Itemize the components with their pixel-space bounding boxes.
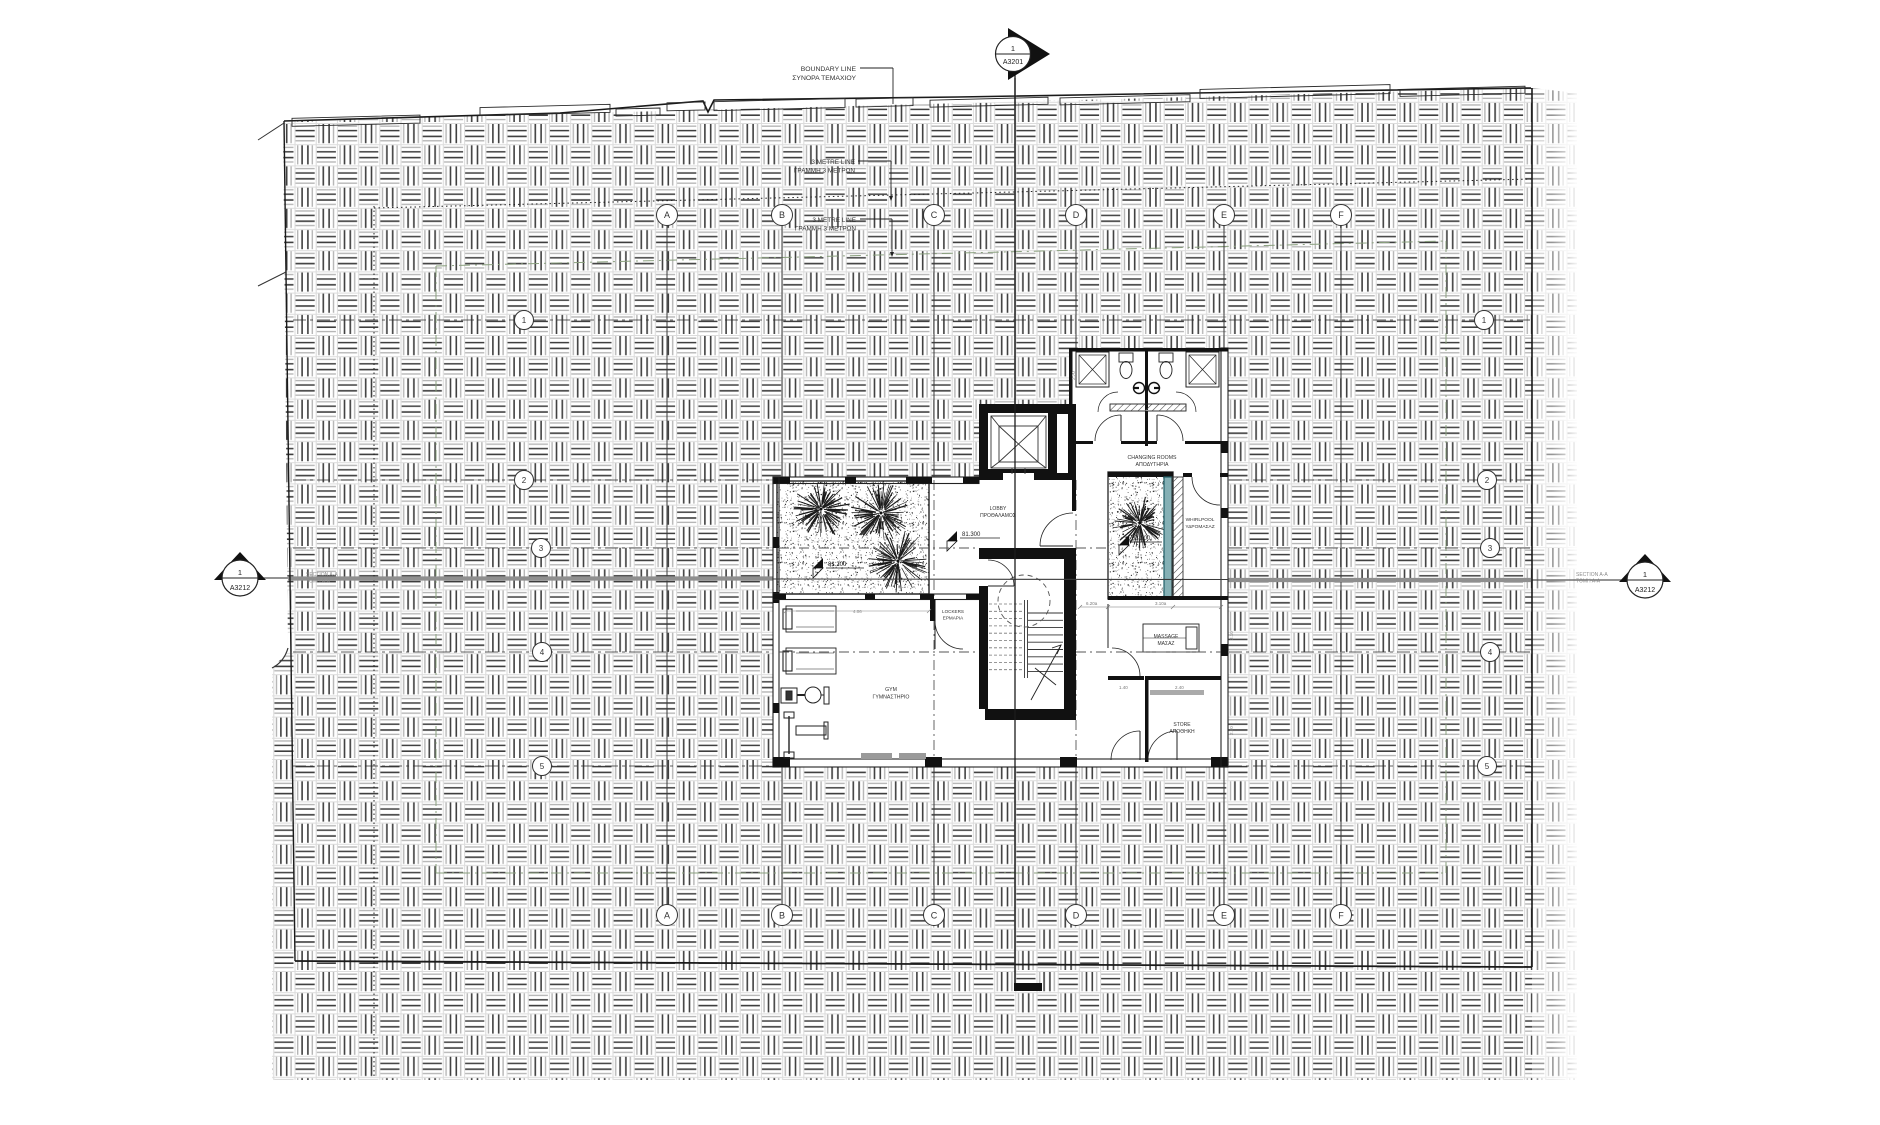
- svg-text:2.70: 2.70: [1071, 371, 1076, 380]
- svg-text:ΣΥΝΟΡΑ ΤΕΜΑΧΙΟΥ: ΣΥΝΟΡΑ ΤΕΜΑΧΙΟΥ: [792, 75, 856, 82]
- svg-text:1: 1: [238, 568, 242, 577]
- svg-text:D: D: [1073, 210, 1080, 220]
- svg-text:C: C: [931, 911, 938, 921]
- svg-text:D: D: [1073, 911, 1080, 921]
- svg-text:4: 4: [1488, 648, 1493, 657]
- svg-text:E: E: [1221, 210, 1227, 220]
- svg-text:ΓΡΑΜΜΗ 3 ΜΕΤΡΩΝ: ΓΡΑΜΜΗ 3 ΜΕΤΡΩΝ: [795, 226, 856, 233]
- svg-text:ΥΔΡΟΜΑΣΑΖ: ΥΔΡΟΜΑΣΑΖ: [1185, 524, 1214, 530]
- svg-text:ΕΡΜΑΡΙΑ: ΕΡΜΑΡΙΑ: [943, 616, 964, 621]
- svg-text:ΓΥΜΝΑΣΤΗΡΙΟ: ΓΥΜΝΑΣΤΗΡΙΟ: [873, 695, 910, 701]
- svg-text:ΜΑΣΑΖ: ΜΑΣΑΖ: [1158, 641, 1175, 647]
- svg-text:3 METRE LINE: 3 METRE LINE: [812, 217, 856, 224]
- svg-text:SECTION A-A: SECTION A-A: [1576, 572, 1608, 578]
- svg-text:5: 5: [540, 762, 545, 771]
- svg-text:3: 3: [539, 544, 544, 553]
- svg-text:A: A: [664, 210, 670, 220]
- svg-text:LOCKERS: LOCKERS: [942, 609, 964, 614]
- svg-text:LOBBY: LOBBY: [990, 506, 1007, 512]
- svg-text:F: F: [1338, 911, 1344, 921]
- svg-text:MASSAGE: MASSAGE: [1154, 634, 1179, 640]
- svg-text:B: B: [779, 210, 785, 220]
- svg-text:1: 1: [1482, 316, 1487, 325]
- svg-text:81.300: 81.300: [962, 532, 981, 538]
- svg-text:ΠΡΟΘΑΛΑΜΟΣ: ΠΡΟΘΑΛΑΜΟΣ: [980, 513, 1016, 519]
- svg-text:2.90: 2.90: [1229, 726, 1234, 735]
- svg-text:STORE: STORE: [1173, 722, 1191, 728]
- svg-text:2: 2: [522, 476, 527, 485]
- svg-text:3 METRE LINE: 3 METRE LINE: [811, 159, 855, 166]
- svg-text:3: 3: [1488, 544, 1493, 553]
- svg-text:E: E: [1221, 911, 1227, 921]
- svg-text:F: F: [1338, 210, 1344, 220]
- svg-text:1: 1: [1011, 44, 1015, 53]
- svg-text:ΓΡΑΜΜΗ 3 ΜΕΤΡΩΝ: ΓΡΑΜΜΗ 3 ΜΕΤΡΩΝ: [794, 168, 855, 175]
- svg-text:81.200: 81.200: [1132, 536, 1151, 542]
- svg-text:1.40: 1.40: [1119, 685, 1128, 690]
- svg-text:1: 1: [1643, 570, 1647, 579]
- svg-text:WHIRLPOOL: WHIRLPOOL: [1186, 517, 1215, 523]
- svg-text:BOUNDARY LINE: BOUNDARY LINE: [801, 66, 857, 73]
- svg-text:CHANGING ROOMS: CHANGING ROOMS: [1128, 455, 1178, 461]
- svg-text:A3212: A3212: [230, 585, 250, 592]
- svg-text:A3201: A3201: [1003, 59, 1023, 66]
- svg-text:1: 1: [522, 316, 527, 325]
- svg-text:B: B: [779, 911, 785, 921]
- svg-text:81.200: 81.200: [828, 562, 847, 568]
- svg-text:2: 2: [1485, 476, 1490, 485]
- svg-text:4.06: 4.06: [853, 609, 862, 614]
- svg-text:3.10a: 3.10a: [1155, 601, 1167, 606]
- svg-text:GYM: GYM: [885, 687, 897, 693]
- svg-text:TOMH A-A: TOMH A-A: [306, 579, 331, 585]
- svg-text:3.10: 3.10: [1229, 631, 1234, 640]
- svg-text:SECTION A-A: SECTION A-A: [306, 572, 338, 578]
- svg-text:ΑΠΟΔΥΤΗΡΙΑ: ΑΠΟΔΥΤΗΡΙΑ: [1136, 462, 1169, 468]
- svg-text:6.20a: 6.20a: [1086, 601, 1098, 606]
- svg-text:C: C: [931, 210, 938, 220]
- svg-text:ΑΠΟΘΗΚΗ: ΑΠΟΘΗΚΗ: [1169, 729, 1195, 735]
- svg-text:A: A: [664, 911, 670, 921]
- svg-text:4: 4: [540, 648, 545, 657]
- svg-text:TOMH A-A: TOMH A-A: [1576, 579, 1601, 585]
- svg-text:2.40: 2.40: [1175, 685, 1184, 690]
- svg-text:A3212: A3212: [1635, 587, 1655, 594]
- svg-text:5: 5: [1485, 762, 1490, 771]
